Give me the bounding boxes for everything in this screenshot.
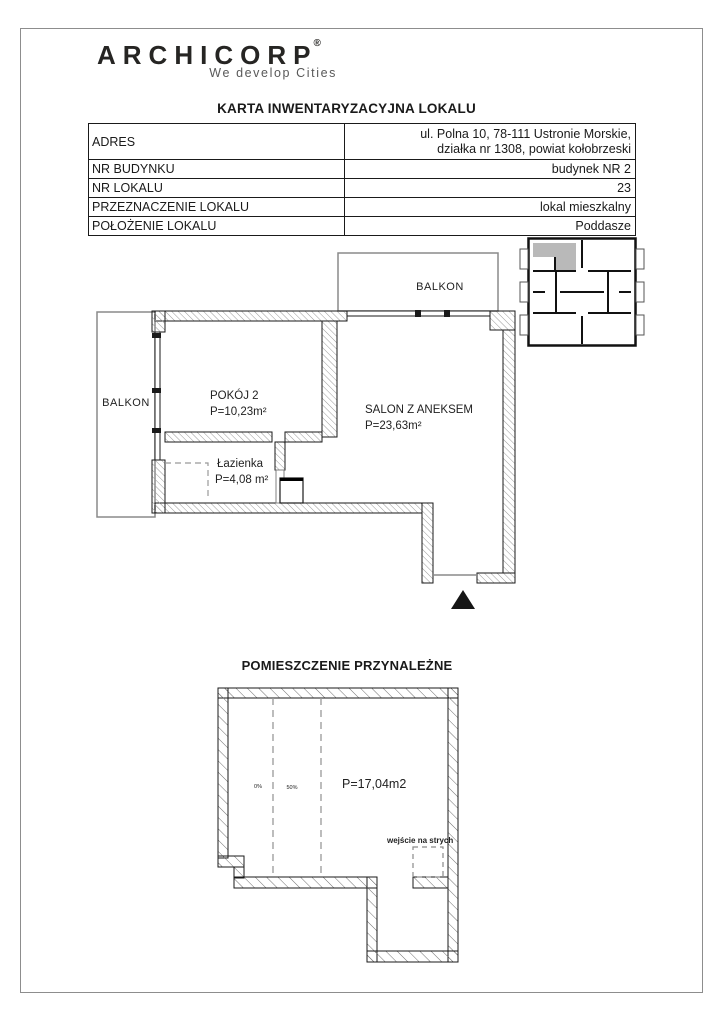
room2-area-label: P=10,23m² <box>210 406 267 418</box>
balcony-left <box>97 312 155 517</box>
annex-walls <box>218 688 458 962</box>
bathroom-area-label: P=4,08 m² <box>215 474 269 486</box>
attic-entrance-label: wejście na strych <box>386 836 453 845</box>
apartment-walls <box>152 311 515 583</box>
annex-area-label: P=17,04m2 <box>342 777 406 791</box>
attic-hatch-outline <box>413 847 443 877</box>
salon-area-label: P=23,63m² <box>365 420 422 432</box>
height-zone-left-label: 0% <box>254 784 262 790</box>
inventory-card-page: ARCHICORP® We develop Cities KARTA INWEN… <box>0 0 723 1023</box>
salon-label: SALON Z ANEKSEM <box>365 404 473 416</box>
balcony-left-label: BALKON <box>102 397 150 409</box>
building-key-plan <box>520 239 644 346</box>
bathroom-dashed-zone <box>165 463 208 500</box>
apartment-floor-plan: BALKON BALKON POKÓJ 2 P=10,23m² SALON Z … <box>97 253 515 609</box>
bathroom-label: Łazienka <box>217 458 264 470</box>
balcony-top-label: BALKON <box>416 281 464 293</box>
annex-floor-plan: 0% 50% P=17,04m2 wejście na strych <box>218 688 458 962</box>
room2-label: POKÓJ 2 <box>210 389 259 402</box>
entrance-marker-icon <box>451 590 475 609</box>
floor-plan-drawing: BALKON BALKON POKÓJ 2 P=10,23m² SALON Z … <box>0 0 723 1023</box>
height-zone-right-label: 50% <box>286 785 297 791</box>
shaft-closet <box>280 478 303 503</box>
